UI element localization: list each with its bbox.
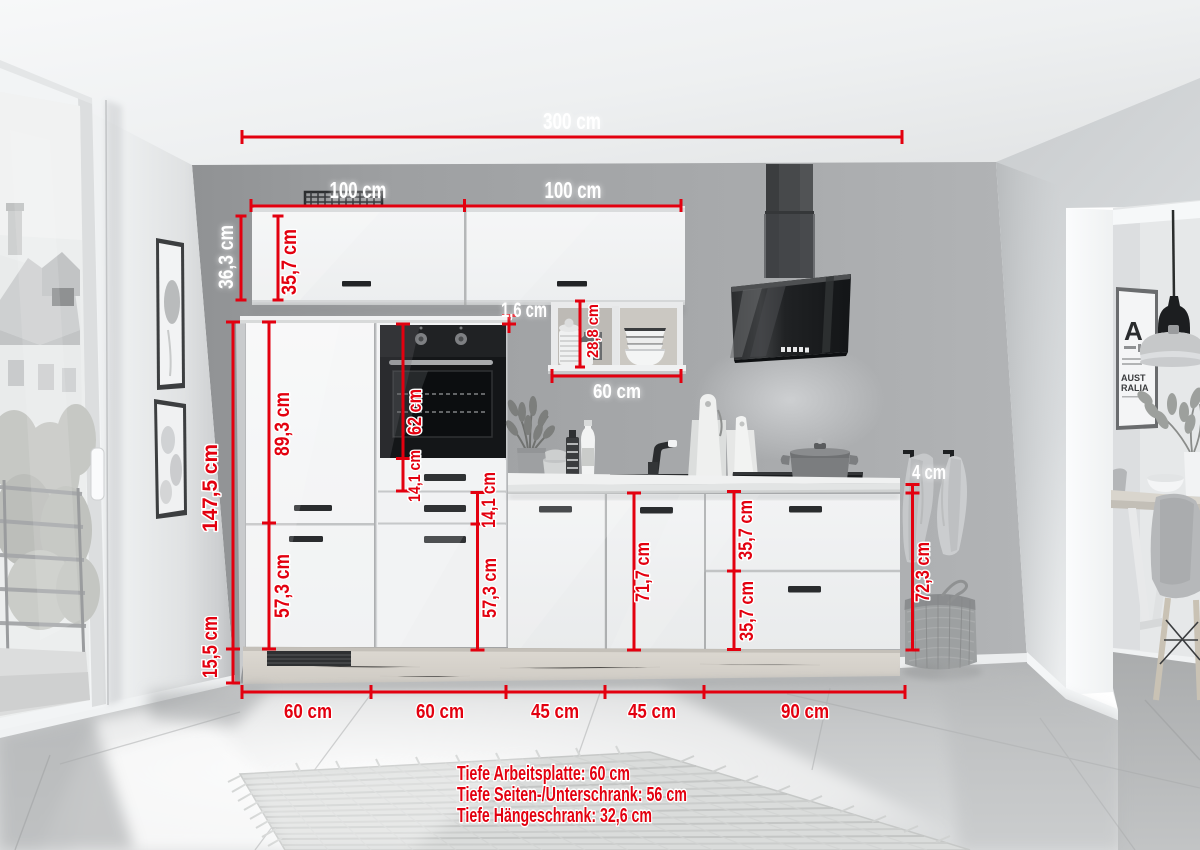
svg-text:89,3 cm: 89,3 cm — [271, 392, 294, 456]
svg-text:AUST: AUST — [1121, 373, 1146, 383]
svg-text:147,5 cm: 147,5 cm — [199, 444, 222, 532]
svg-text:100 cm: 100 cm — [330, 177, 387, 203]
svg-text:15,5 cm: 15,5 cm — [199, 616, 222, 678]
svg-text:60 cm: 60 cm — [284, 701, 332, 723]
svg-text:62 cm: 62 cm — [405, 389, 426, 435]
svg-text:60 cm: 60 cm — [593, 381, 641, 403]
svg-text:36,3 cm: 36,3 cm — [215, 225, 238, 289]
svg-text:71,7 cm: 71,7 cm — [633, 542, 654, 602]
svg-text:Tiefe Hängeschrank: 32,6 cm: Tiefe Hängeschrank: 32,6 cm — [457, 805, 652, 827]
svg-text:57,3 cm: 57,3 cm — [271, 554, 294, 618]
svg-text:A: A — [1124, 316, 1143, 346]
svg-text:72,3 cm: 72,3 cm — [913, 542, 934, 602]
svg-text:60 cm: 60 cm — [416, 701, 464, 723]
svg-text:300 cm: 300 cm — [543, 108, 601, 134]
svg-text:45 cm: 45 cm — [628, 701, 676, 723]
svg-text:35,7 cm: 35,7 cm — [736, 500, 757, 560]
svg-text:RALIA: RALIA — [1121, 383, 1149, 393]
svg-text:Tiefe Arbeitsplatte: 60 cm: Tiefe Arbeitsplatte: 60 cm — [457, 763, 630, 785]
svg-text:35,7 cm: 35,7 cm — [737, 581, 758, 641]
svg-text:14,1 cm: 14,1 cm — [405, 450, 424, 502]
svg-text:28,8 cm: 28,8 cm — [585, 304, 602, 358]
svg-text:35,7 cm: 35,7 cm — [278, 229, 301, 295]
svg-text:100 cm: 100 cm — [545, 177, 602, 203]
svg-text:Tiefe Seiten-/Unterschrank: 56: Tiefe Seiten-/Unterschrank: 56 cm — [457, 784, 687, 806]
svg-text:4 cm: 4 cm — [912, 462, 946, 484]
svg-text:45 cm: 45 cm — [531, 701, 579, 723]
svg-text:90 cm: 90 cm — [781, 701, 829, 723]
svg-text:1,6 cm: 1,6 cm — [501, 299, 547, 322]
svg-text:57,3 cm: 57,3 cm — [480, 558, 501, 618]
svg-text:14,1 cm: 14,1 cm — [479, 472, 500, 528]
